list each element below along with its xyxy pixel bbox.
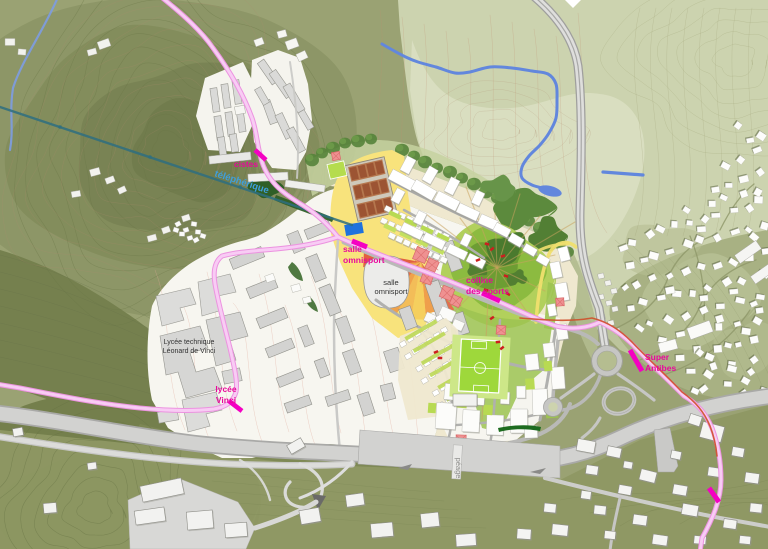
svg-text:Vinci: Vinci xyxy=(216,395,236,405)
svg-text:Lycée technique: Lycée technique xyxy=(164,339,215,346)
svg-text:cistes: cistes xyxy=(234,159,258,169)
svg-text:péage: péage xyxy=(454,458,463,479)
svg-text:des sports: des sports xyxy=(466,286,509,296)
svg-text:Léonard de Vinci: Léonard de Vinci xyxy=(163,348,216,355)
svg-text:salle: salle xyxy=(383,278,398,287)
svg-text:Super: Super xyxy=(645,352,670,362)
svg-text:omnisport: omnisport xyxy=(343,255,385,265)
svg-text:omnisport: omnisport xyxy=(375,287,409,296)
svg-text:Antibes: Antibes xyxy=(645,363,676,373)
svg-text:colline: colline xyxy=(466,275,493,285)
svg-text:salle: salle xyxy=(343,244,362,254)
svg-text:lycée: lycée xyxy=(215,384,237,394)
